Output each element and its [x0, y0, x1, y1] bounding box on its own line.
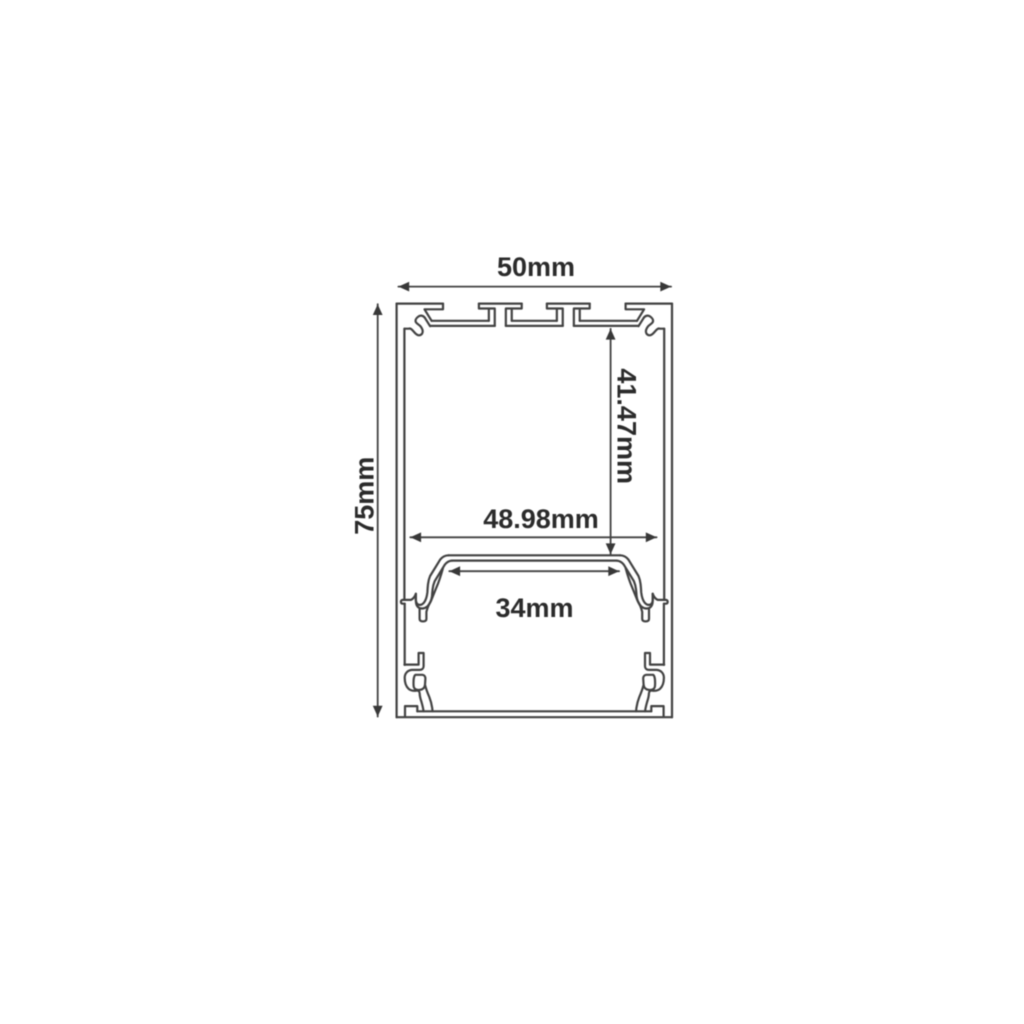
svg-text:34mm: 34mm [495, 593, 573, 623]
svg-text:50mm: 50mm [497, 252, 575, 282]
svg-text:48.98mm: 48.98mm [483, 504, 599, 534]
svg-text:75mm: 75mm [350, 457, 380, 535]
svg-text:41.47mm: 41.47mm [612, 368, 642, 484]
